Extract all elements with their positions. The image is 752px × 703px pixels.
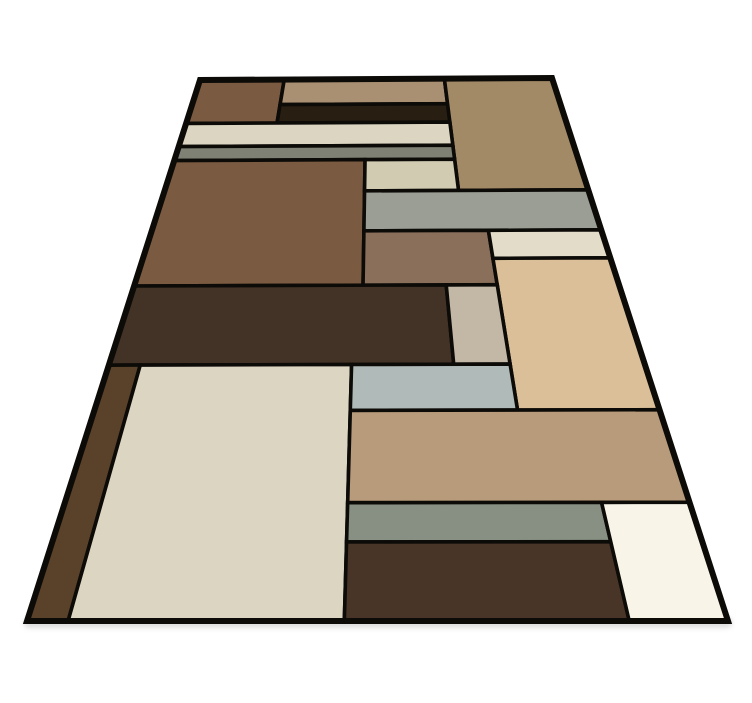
patch-bottom-brown-block [344,542,629,621]
patch-dark-inset-strip [277,104,450,123]
patch-beige-block [365,159,459,191]
rug-product-image [0,0,752,703]
rug-illustration [0,0,752,703]
patch-taupe-block [446,285,510,365]
patch-sage-stripe [347,502,611,542]
patch-wide-gray-band [364,190,601,231]
patch-tan-band [348,410,690,503]
patch-bluegray-stripe [350,364,517,410]
patch-right-cream-strip [488,230,610,258]
patch-top-middle-tan-block [280,79,447,105]
patch-espresso-band [109,285,454,365]
patch-cream-stripe [179,122,453,146]
patch-mauve-brown-block [363,230,497,285]
